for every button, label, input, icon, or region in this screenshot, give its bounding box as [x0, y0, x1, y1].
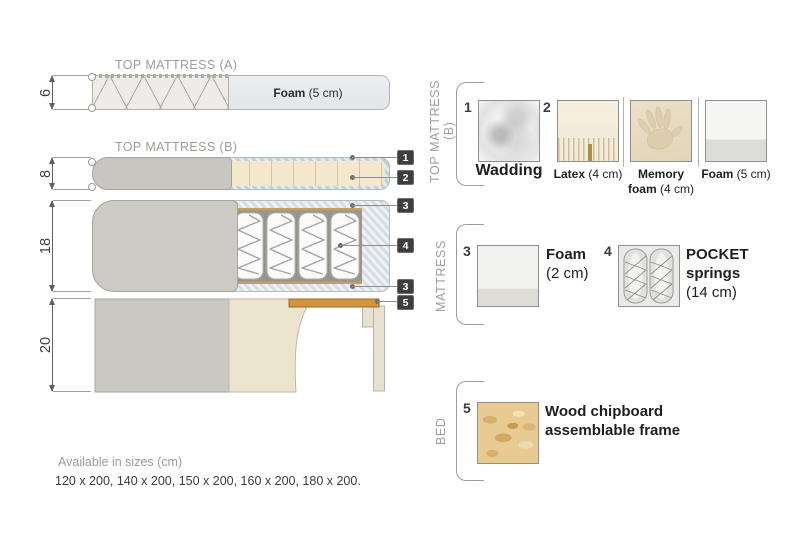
foam5-caption-rest: (5 cm) — [733, 167, 770, 181]
chipboard-caption-bold: Wood chipboard — [545, 402, 725, 421]
callout-line — [352, 157, 397, 158]
memory-foam-caption: Memory foam (4 cm) — [618, 167, 704, 197]
callout-line — [377, 301, 397, 302]
dimension-top-b: 8 — [46, 157, 90, 190]
wood-slat — [289, 299, 379, 307]
legend-item-number: 5 — [463, 400, 471, 416]
arrow-up-icon — [49, 200, 55, 207]
available-sizes-values: 120 x 200, 140 x 200, 150 x 200, 160 x 2… — [55, 474, 361, 488]
springs-caption-rest: (14 cm) — [686, 283, 776, 302]
callout-chip-2: 2 — [397, 170, 414, 185]
latex-caption-bold: Latex — [554, 167, 585, 181]
foam5-caption-bold: Foam — [701, 167, 733, 181]
legend-item-number: 4 — [604, 243, 612, 259]
mattress-infographic: 6 8 18 20 TOP MATTRESS (A) Foam (5 cm) T… — [0, 0, 800, 533]
tuft-button — [88, 104, 96, 112]
springs-caption-bold: POCKET — [686, 245, 776, 264]
legend-item-number: 3 — [463, 243, 471, 259]
dimension-bed: 20 — [46, 298, 90, 392]
tick-line — [53, 291, 91, 292]
tuft-button — [88, 158, 96, 166]
callout-line — [352, 177, 397, 178]
tick-line — [53, 200, 91, 201]
chipboard-caption-bold2: assemblable frame — [545, 421, 725, 440]
memory-foam-swatch — [630, 100, 692, 162]
dimension-value: 20 — [38, 328, 54, 362]
legend-divider — [698, 97, 699, 167]
fabric-cover-top-b — [92, 157, 232, 190]
arrow-up-icon — [49, 298, 55, 305]
dimension-top-a: 6 — [46, 75, 90, 110]
tick-line — [53, 109, 91, 110]
top-mattress-b-title: TOP MATTRESS (B) — [115, 140, 237, 154]
dimension-value: 18 — [38, 229, 54, 263]
chipboard-swatch — [477, 402, 539, 464]
tuft-button — [88, 183, 96, 191]
hand-imprint-icon — [631, 101, 691, 161]
wadding-swatch — [478, 100, 540, 162]
fabric-cover-mattress — [92, 200, 238, 292]
callout-chip-3-top: 3 — [397, 198, 414, 213]
tick-line — [53, 391, 91, 392]
tick-line — [53, 75, 91, 76]
foam-layer-label: Foam (5 cm) — [273, 86, 342, 100]
frame-post — [374, 306, 385, 391]
dimension-mattress: 18 — [46, 200, 90, 292]
latex-caption-rest: (4 cm) — [585, 167, 622, 181]
foam2-caption-rest: (2 cm) — [546, 264, 616, 283]
chipboard-caption: Wood chipboard assemblable frame — [545, 402, 725, 440]
bed-base-illustration — [92, 296, 390, 396]
foam-label-bold: Foam — [273, 86, 305, 100]
dimension-value: 6 — [38, 76, 54, 110]
available-sizes-heading: Available in sizes (cm) — [58, 455, 182, 469]
wadding-caption: Wadding — [466, 163, 552, 178]
legend-group-label-top-b: TOP MATTRESS (B) — [428, 73, 456, 189]
springs-caption-bold2: springs — [686, 264, 776, 283]
pocket-springs-icon — [619, 246, 679, 306]
latex-blocks-layer — [228, 161, 385, 186]
callout-chip-5: 5 — [397, 295, 414, 310]
tick-line — [53, 157, 91, 158]
top-mattress-a-title: TOP MATTRESS (A) — [115, 58, 237, 72]
pocket-springs-swatch — [618, 245, 680, 307]
memory-caption-bold2: foam — [628, 182, 657, 196]
legend-group-label-bed: BED — [434, 402, 448, 460]
callout-chip-4: 4 — [397, 238, 414, 253]
latex-swatch — [557, 100, 619, 162]
legend-item-number: 2 — [543, 99, 551, 115]
foam-layer-top-a: Foam (5 cm) — [226, 75, 390, 110]
foam-5cm-caption: Foam (5 cm) — [693, 167, 779, 182]
memory-caption-rest: (4 cm) — [657, 182, 694, 196]
callout-line — [340, 245, 397, 246]
legend-item-number: 1 — [464, 99, 472, 115]
dimension-value: 8 — [38, 157, 54, 191]
frame-bracket — [363, 306, 375, 327]
legend-group-label-mattress: MATTRESS — [434, 228, 448, 324]
foam-2cm-swatch — [477, 245, 539, 307]
callout-line — [352, 205, 397, 206]
foam-5cm-swatch — [705, 100, 767, 162]
memory-caption-bold: Memory — [638, 167, 684, 181]
pocket-springs-caption: POCKET springs (14 cm) — [686, 245, 776, 302]
quilted-cover-layer — [92, 75, 229, 110]
tick-line — [53, 189, 91, 190]
callout-chip-3-bottom: 3 — [397, 279, 414, 294]
legend-divider — [623, 97, 624, 167]
tuft-button — [88, 73, 96, 81]
tick-line — [53, 298, 91, 299]
callout-line — [352, 286, 397, 287]
callout-chip-1: 1 — [397, 150, 414, 165]
foam-label-rest: (5 cm) — [305, 86, 342, 100]
